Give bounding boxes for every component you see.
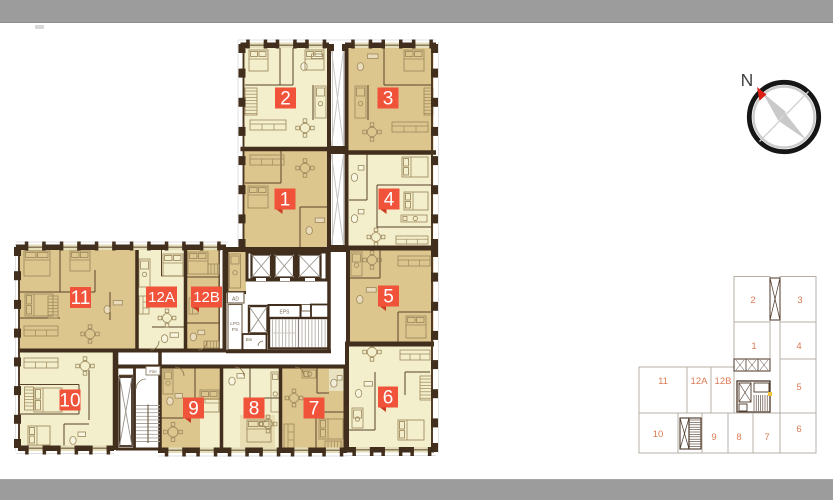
- svg-text:2: 2: [750, 295, 755, 306]
- svg-text:1: 1: [751, 341, 756, 352]
- svg-text:7: 7: [309, 399, 320, 420]
- svg-text:5: 5: [796, 382, 801, 393]
- svg-text:10: 10: [59, 391, 80, 412]
- svg-text:Bin: Bin: [246, 337, 253, 342]
- svg-text:12A: 12A: [691, 376, 709, 387]
- svg-text:7: 7: [764, 432, 769, 443]
- svg-text:Fire: Fire: [149, 369, 157, 374]
- svg-text:8: 8: [736, 432, 741, 443]
- svg-text:4: 4: [384, 190, 395, 211]
- svg-text:3: 3: [797, 295, 802, 306]
- svg-text:N: N: [741, 70, 754, 90]
- svg-text:2: 2: [280, 89, 291, 110]
- svg-text:6: 6: [383, 388, 394, 409]
- svg-text:12B: 12B: [715, 376, 732, 387]
- svg-text:3: 3: [383, 89, 394, 110]
- svg-text:9: 9: [711, 432, 716, 443]
- svg-text:6: 6: [796, 424, 801, 435]
- svg-text:PS: PS: [232, 327, 238, 333]
- svg-text:11: 11: [658, 376, 668, 387]
- svg-text:12A: 12A: [148, 289, 175, 306]
- svg-text:LPG: LPG: [230, 321, 240, 327]
- svg-text:10: 10: [653, 429, 664, 440]
- svg-text:8: 8: [249, 399, 260, 420]
- svg-text:1: 1: [280, 190, 291, 211]
- svg-text:AD: AD: [232, 297, 239, 303]
- svg-text:5: 5: [383, 287, 394, 308]
- svg-text:9: 9: [188, 399, 199, 420]
- svg-text:11: 11: [71, 288, 91, 309]
- svg-text:12B: 12B: [193, 289, 220, 306]
- svg-text:4: 4: [796, 341, 801, 352]
- svg-text:EPS: EPS: [279, 310, 290, 316]
